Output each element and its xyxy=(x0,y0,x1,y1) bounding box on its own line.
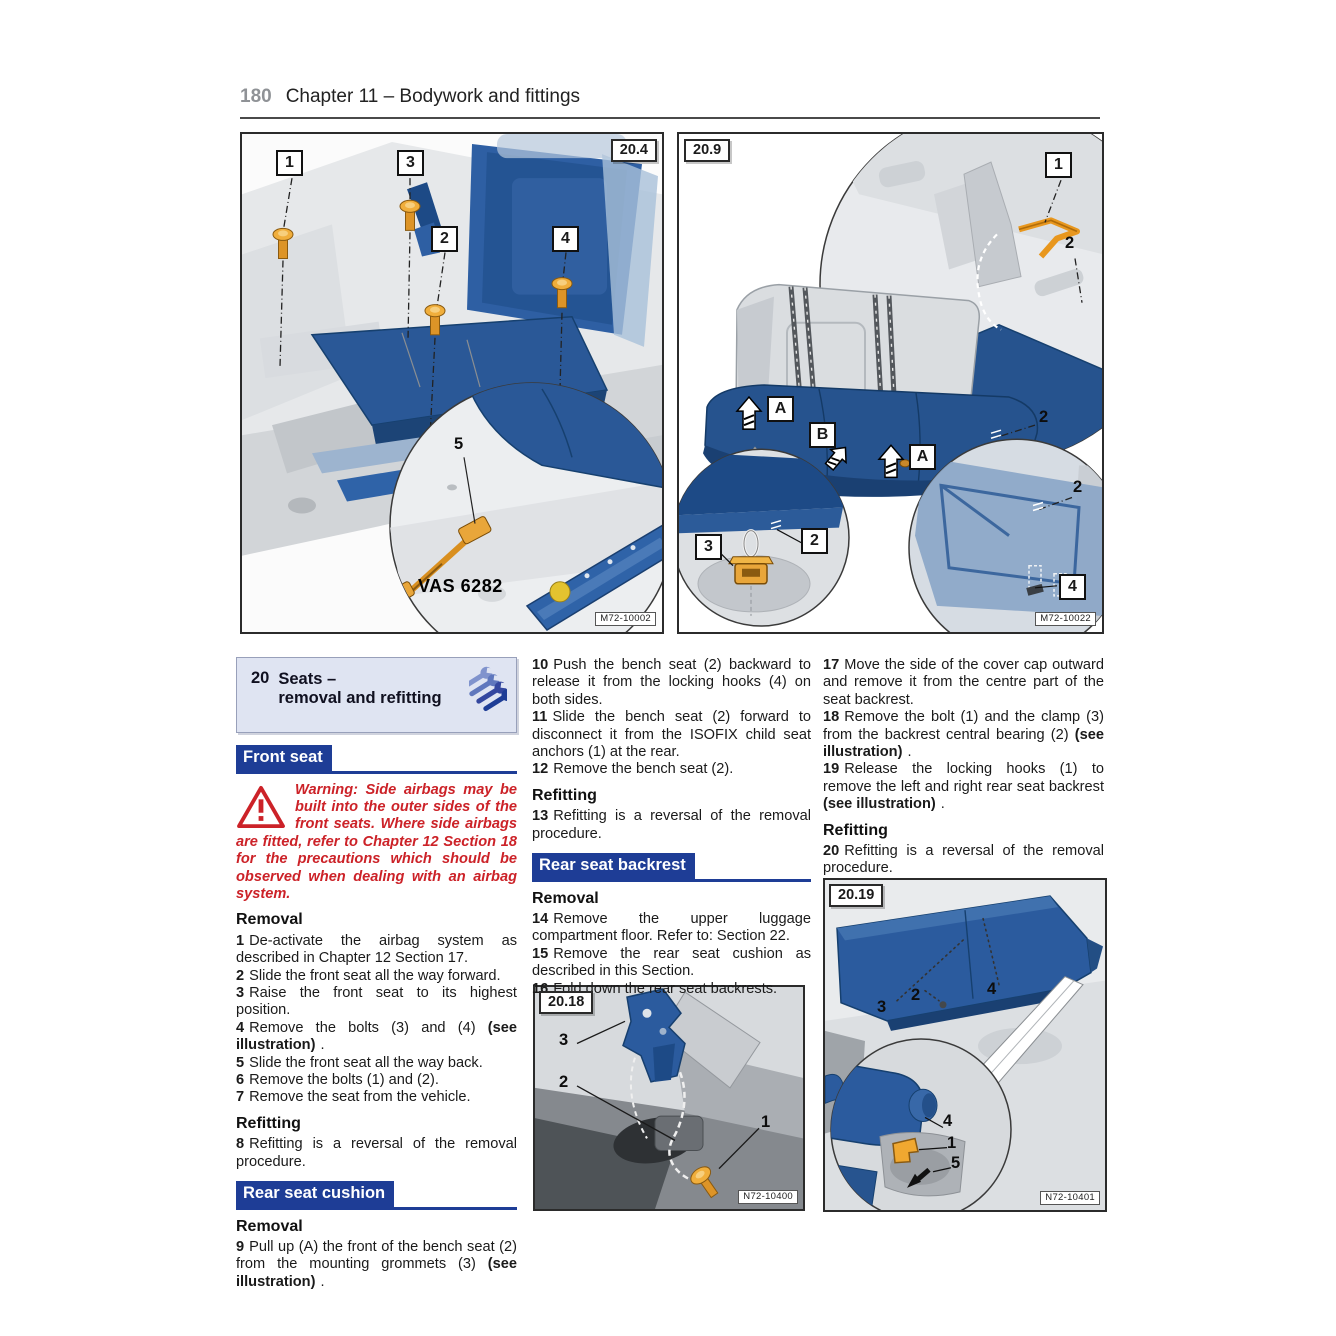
callout-3: 3 xyxy=(877,998,886,1017)
middle-column: 10Push the bench seat (2) backward to re… xyxy=(532,657,811,998)
step-18: 18Remove the bolt (1) and the clamp (3) … xyxy=(823,709,1104,761)
callout-4: 4 xyxy=(552,226,579,252)
callout-4-panel: 4 xyxy=(1059,574,1086,600)
refitting-heading: Refitting xyxy=(532,787,811,804)
step-7: 7Remove the seat from the vehicle. xyxy=(236,1089,517,1106)
callout-3: 3 xyxy=(397,150,424,176)
section-title: Seats – removal and refitting xyxy=(278,670,441,708)
callout-4: 4 xyxy=(987,980,996,999)
rear-bench-illustration xyxy=(679,134,1102,632)
callout-5-inset: 5 xyxy=(951,1154,960,1173)
figure-label: 20.19 xyxy=(829,884,883,907)
step-4: 4Remove the bolts (3) and (4) (see illus… xyxy=(236,1020,517,1055)
arrow-label-b: B xyxy=(809,422,836,448)
callout-4-inset: 4 xyxy=(943,1112,952,1131)
step-15: 15Remove the rear seat cushion as descri… xyxy=(532,946,811,981)
step-11: 11Slide the bench seat (2) forward to di… xyxy=(532,709,811,761)
arrow-label-a2: A xyxy=(909,444,936,470)
page-number: 180 xyxy=(240,86,272,107)
backrest-bearing-illustration xyxy=(535,987,803,1209)
removal-heading-2: Removal xyxy=(236,1218,517,1235)
front-seat-header: Front seat xyxy=(236,745,517,774)
arrow-label-a: A xyxy=(767,396,794,422)
step-14: 14Remove the upper luggage compartment f… xyxy=(532,911,811,946)
callout-1: 1 xyxy=(761,1113,770,1132)
rear-seat-cushion-header: Rear seat cushion xyxy=(236,1181,517,1210)
right-column: 17Move the side of the cover cap outward… xyxy=(823,657,1104,878)
callout-2: 2 xyxy=(559,1073,568,1092)
callout-2-panel: 2 xyxy=(1073,478,1082,497)
callout-2: 2 xyxy=(911,986,920,1005)
chapter-title: Chapter 11 – Bodywork and fittings xyxy=(286,86,580,107)
step-8: 8Refitting is a reversal of the removal … xyxy=(236,1136,517,1171)
step-5: 5Slide the front seat all the way back. xyxy=(236,1055,517,1072)
removal-heading: Removal xyxy=(236,911,517,928)
step-3: 3Raise the front seat to its highest pos… xyxy=(236,985,517,1020)
step-10: 10Push the bench seat (2) backward to re… xyxy=(532,657,811,709)
callout-1: 1 xyxy=(1045,152,1072,178)
callout-2-grommet: 2 xyxy=(801,528,828,554)
figure-ref: N72-10400 xyxy=(738,1190,798,1204)
refitting-heading: Refitting xyxy=(236,1115,517,1132)
callout-5: 5 xyxy=(454,435,463,454)
backrest-panel-illustration xyxy=(825,880,1105,1210)
removal-heading: Removal xyxy=(532,890,811,907)
step-6: 6Remove the bolts (1) and (2). xyxy=(236,1072,517,1089)
callout-1-inset: 1 xyxy=(947,1134,956,1153)
figure-ref: M72-10002 xyxy=(595,612,656,626)
figure-20-4: 20.4 1 3 2 4 5 VAS 6282 M72-10002 xyxy=(240,132,664,634)
step-17: 17Move the side of the cover cap outward… xyxy=(823,657,1104,709)
warning-icon xyxy=(236,785,286,829)
figure-label: 20.18 xyxy=(539,991,593,1014)
step-1: 1De-activate the airbag system as descri… xyxy=(236,933,517,968)
callout-2: 2 xyxy=(431,226,458,252)
figure-20-19: 20.19 3 2 4 4 1 5 N72-10401 xyxy=(823,878,1107,1212)
manual-page: 180Chapter 11 – Bodywork and fittings xyxy=(0,0,1336,1336)
left-column: 20 Seats – removal and refitting Front s… xyxy=(236,657,517,1291)
step-20: 20Refitting is a reversal of the removal… xyxy=(823,843,1104,878)
page-header: 180Chapter 11 – Bodywork and fittings xyxy=(240,86,580,108)
callout-3-grommet: 3 xyxy=(695,534,722,560)
rear-seat-backrest-header: Rear seat backrest xyxy=(532,853,811,882)
figure-label: 20.9 xyxy=(684,139,730,162)
step-12: 12Remove the bench seat (2). xyxy=(532,761,811,778)
figure-label: 20.4 xyxy=(611,139,657,162)
callout-3: 3 xyxy=(559,1031,568,1050)
step-13: 13Refitting is a reversal of the removal… xyxy=(532,808,811,843)
callout-1: 1 xyxy=(276,150,303,176)
warning-note: Warning: Side airbags may be built into … xyxy=(236,782,517,904)
figure-20-18: 20.18 3 2 1 N72-10400 xyxy=(533,985,805,1211)
front-seat-illustration xyxy=(242,134,662,632)
refitting-heading: Refitting xyxy=(823,822,1104,839)
callout-2-bench: 2 xyxy=(1039,408,1048,427)
header-rule xyxy=(240,117,1100,119)
tool-label: VAS 6282 xyxy=(418,576,503,597)
callout-2: 2 xyxy=(1065,234,1074,253)
figure-ref: M72-10022 xyxy=(1035,612,1096,626)
figure-ref: N72-10401 xyxy=(1040,1191,1100,1205)
step-9: 9Pull up (A) the front of the bench seat… xyxy=(236,1239,517,1291)
step-19: 19Release the locking hooks (1) to remov… xyxy=(823,761,1104,813)
section-number: 20 xyxy=(251,670,269,708)
section-heading-box: 20 Seats – removal and refitting xyxy=(236,657,517,733)
step-2: 2Slide the front seat all the way forwar… xyxy=(236,968,517,985)
figure-20-9: 20.9 1 2 A B A 2 3 2 2 4 M72-10022 xyxy=(677,132,1104,634)
wrench-icon xyxy=(469,665,507,727)
